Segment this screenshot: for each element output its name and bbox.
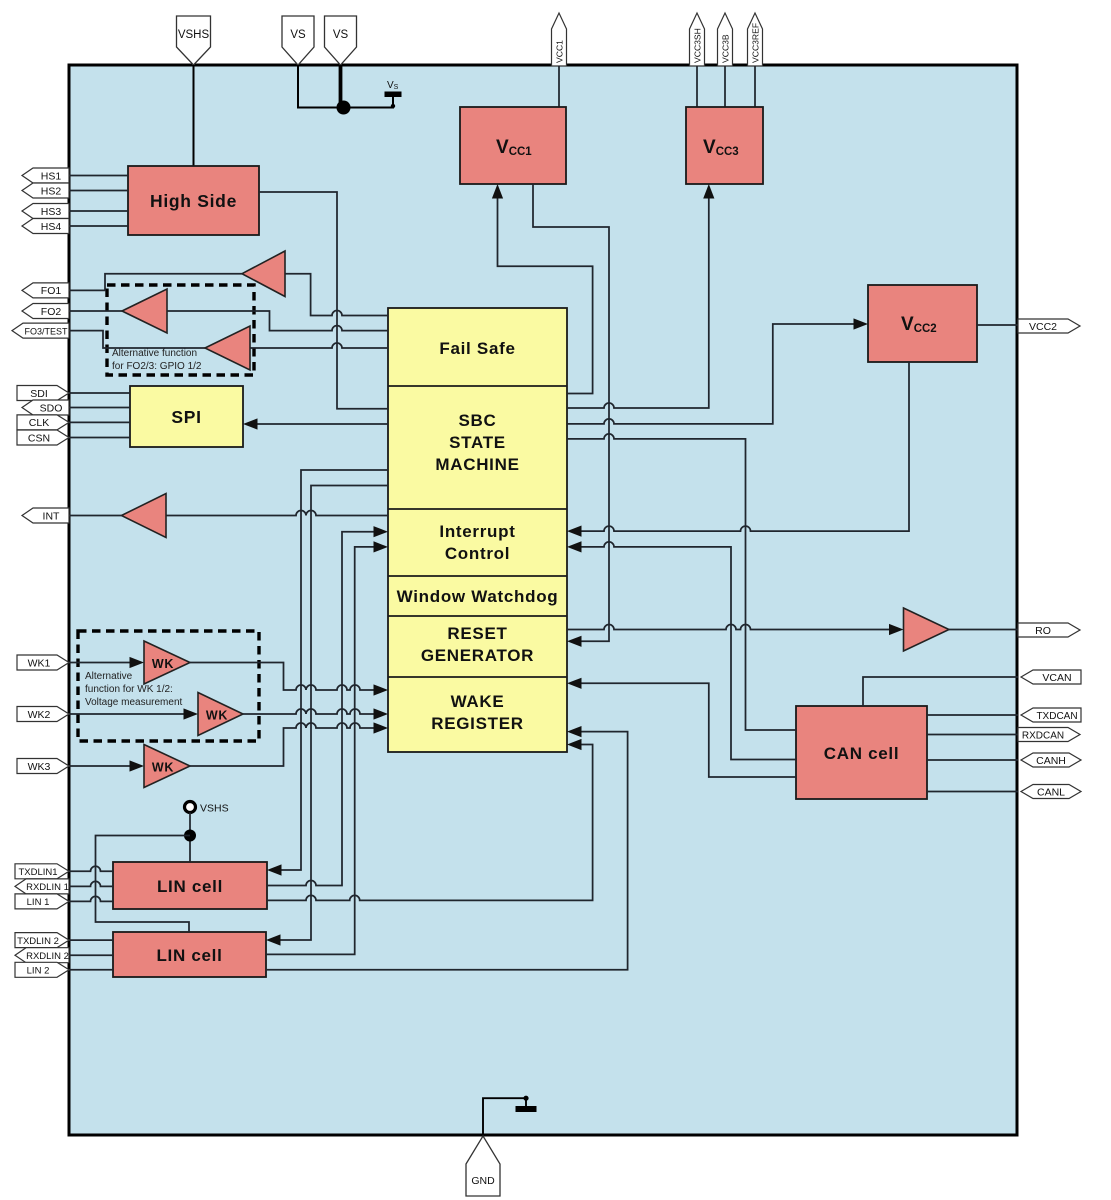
svg-text:FO3/TEST: FO3/TEST — [24, 326, 68, 336]
svg-text:Interrupt: Interrupt — [439, 522, 515, 541]
svg-text:FO2: FO2 — [41, 306, 62, 318]
svg-text:Alternative function: Alternative function — [112, 348, 197, 359]
svg-text:HS3: HS3 — [41, 206, 62, 218]
svg-text:LIN 1: LIN 1 — [27, 897, 50, 908]
svg-text:VCAN: VCAN — [1042, 672, 1071, 684]
svg-text:GENERATOR: GENERATOR — [421, 646, 534, 665]
svg-text:RO: RO — [1035, 625, 1051, 637]
svg-text:HS1: HS1 — [41, 170, 62, 182]
svg-text:STATE: STATE — [449, 433, 506, 452]
svg-text:High Side: High Side — [150, 191, 237, 211]
svg-text:CSN: CSN — [28, 432, 50, 444]
svg-text:LIN 2: LIN 2 — [27, 966, 50, 977]
svg-text:WK1: WK1 — [28, 657, 51, 669]
svg-text:CANH: CANH — [1036, 755, 1066, 767]
svg-text:RXDLIN 1: RXDLIN 1 — [26, 882, 69, 893]
svg-text:INT: INT — [43, 510, 61, 522]
svg-text:VCC3B: VCC3B — [721, 34, 731, 63]
svg-text:VCC2: VCC2 — [1029, 321, 1057, 333]
svg-text:GND: GND — [471, 1175, 495, 1187]
svg-text:WK: WK — [206, 709, 228, 723]
svg-text:RXDLIN 2: RXDLIN 2 — [26, 951, 69, 962]
svg-text:RXDCAN: RXDCAN — [1022, 730, 1064, 741]
svg-text:CAN cell: CAN cell — [824, 744, 900, 763]
svg-text:WK: WK — [152, 657, 174, 671]
svg-text:SDI: SDI — [30, 388, 48, 400]
svg-text:VSHS: VSHS — [178, 29, 210, 41]
svg-text:LIN cell: LIN cell — [156, 946, 222, 965]
svg-text:TXDLIN 2: TXDLIN 2 — [17, 936, 59, 947]
svg-text:Voltage measurement: Voltage measurement — [85, 697, 183, 708]
svg-text:VCC3REF: VCC3REF — [751, 23, 761, 63]
svg-text:HS4: HS4 — [41, 221, 62, 233]
svg-text:CANL: CANL — [1037, 786, 1065, 798]
svg-text:Control: Control — [445, 544, 510, 563]
svg-text:HS2: HS2 — [41, 185, 62, 197]
svg-text:WK: WK — [152, 761, 174, 775]
svg-text:VS: VS — [290, 29, 306, 41]
svg-text:LIN cell: LIN cell — [157, 877, 223, 896]
svg-text:VCC1: VCC1 — [555, 40, 565, 63]
svg-text:function for WK 1/2:: function for WK 1/2: — [85, 684, 173, 695]
svg-text:WK2: WK2 — [28, 709, 51, 721]
svg-text:TXDCAN: TXDCAN — [1036, 711, 1077, 722]
svg-text:SBC: SBC — [459, 411, 497, 430]
svg-text:Alternative: Alternative — [85, 671, 133, 682]
svg-text:WK3: WK3 — [28, 761, 51, 773]
svg-text:for FO2/3: GPIO 1/2: for FO2/3: GPIO 1/2 — [112, 361, 202, 372]
svg-text:MACHINE: MACHINE — [435, 455, 519, 474]
svg-text:TXDLIN1: TXDLIN1 — [18, 867, 57, 878]
svg-text:CLK: CLK — [29, 417, 49, 429]
svg-text:RESET: RESET — [447, 624, 507, 643]
svg-text:VSHS: VSHS — [200, 803, 229, 815]
svg-text:SDO: SDO — [40, 402, 63, 414]
svg-text:Window Watchdog: Window Watchdog — [397, 587, 559, 606]
svg-text:SPI: SPI — [171, 407, 201, 427]
svg-text:REGISTER: REGISTER — [431, 714, 524, 733]
svg-text:Fail Safe: Fail Safe — [439, 339, 515, 358]
svg-text:WAKE: WAKE — [451, 692, 505, 711]
svg-text:FO1: FO1 — [41, 285, 62, 297]
svg-text:VS: VS — [333, 29, 349, 41]
svg-text:VCC3SH: VCC3SH — [693, 28, 703, 63]
